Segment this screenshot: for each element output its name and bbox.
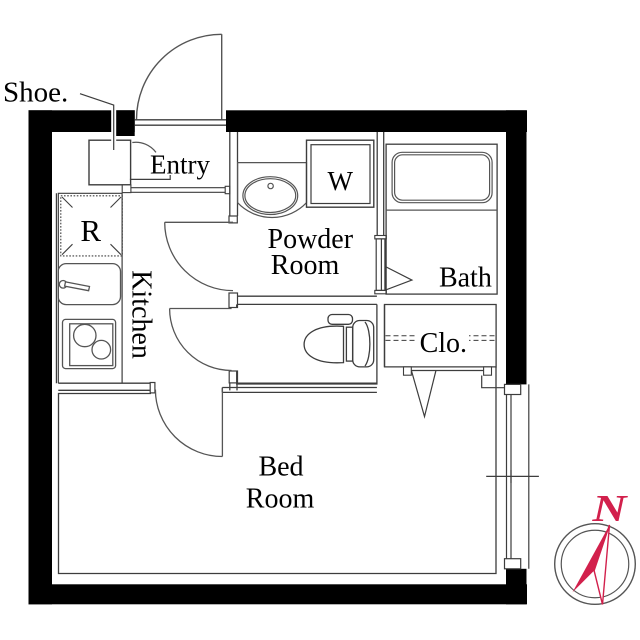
svg-text:Entry: Entry (150, 150, 210, 180)
svg-text:N: N (591, 488, 628, 530)
svg-text:W: W (328, 166, 354, 196)
svg-text:Bath: Bath (439, 263, 492, 294)
svg-text:Clo.: Clo. (420, 328, 467, 359)
svg-text:Room: Room (271, 250, 340, 281)
svg-text:Bed: Bed (258, 451, 303, 482)
svg-text:Room: Room (246, 483, 315, 514)
svg-text:Shoe.: Shoe. (3, 77, 68, 109)
svg-text:R: R (80, 213, 101, 248)
svg-text:Kitchen: Kitchen (126, 270, 157, 359)
